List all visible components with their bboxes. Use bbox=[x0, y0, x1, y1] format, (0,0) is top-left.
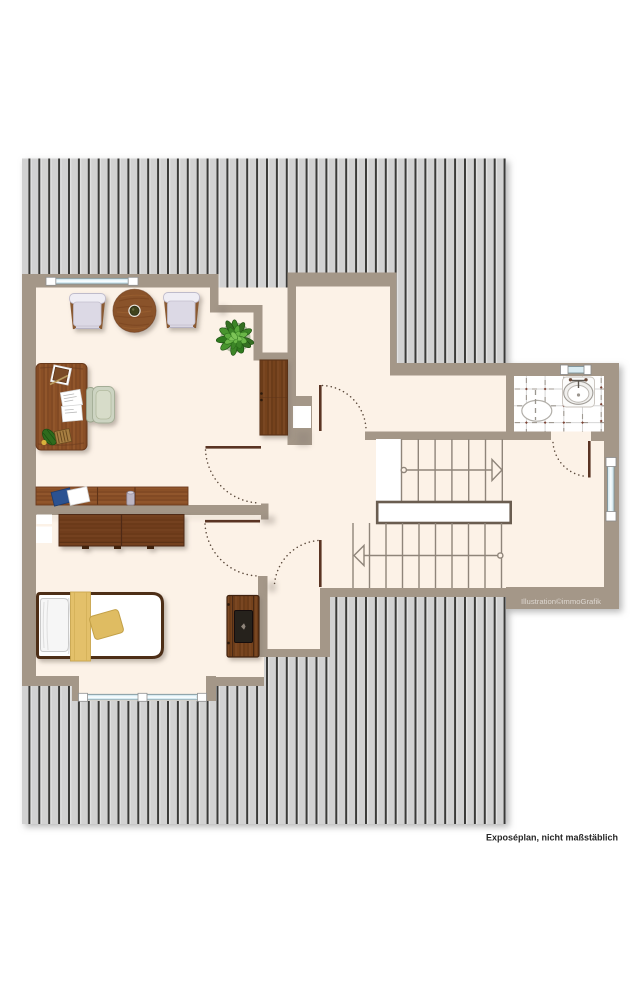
svg-text:Exposéplan, nicht maßstäblich: Exposéplan, nicht maßstäblich bbox=[486, 833, 618, 843]
svg-text:Illustration©immoGrafik: Illustration©immoGrafik bbox=[521, 597, 601, 606]
